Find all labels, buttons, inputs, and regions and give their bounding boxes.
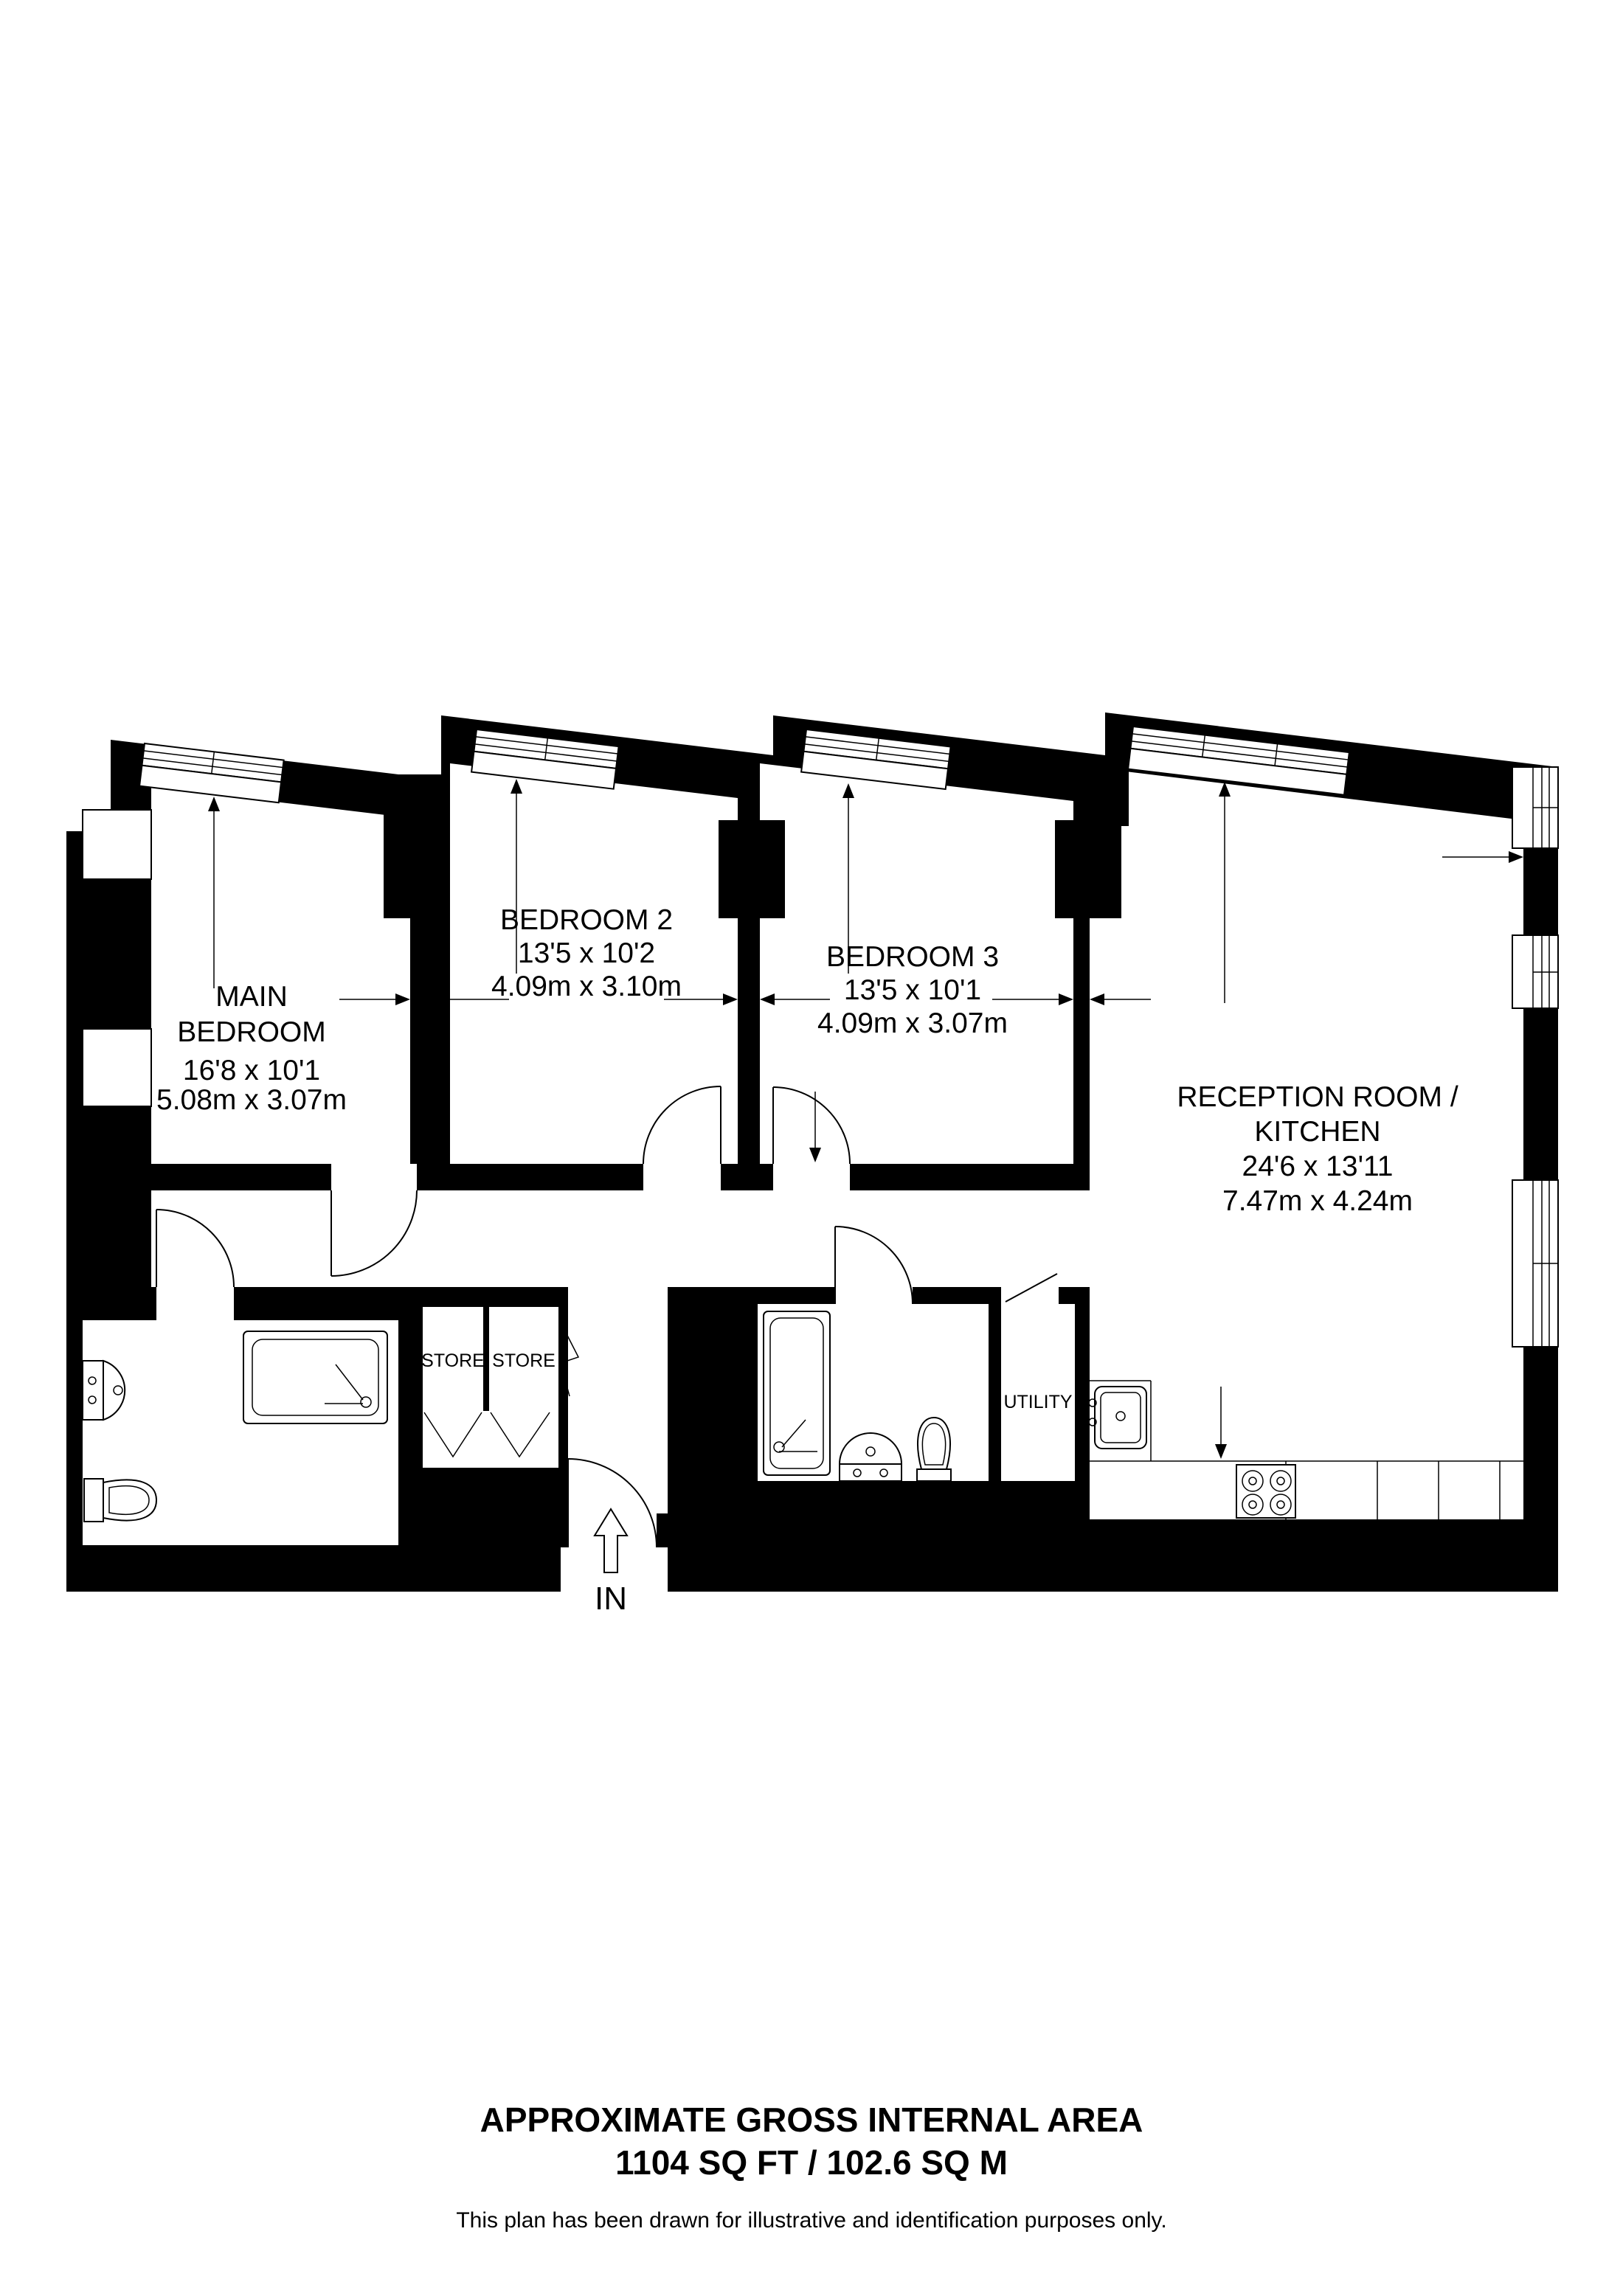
bedroom2-name: BEDROOM 2 <box>500 904 673 936</box>
main-bedroom-name-line2: BEDROOM <box>177 1016 326 1048</box>
kitchen-sink-icon <box>1089 1387 1146 1449</box>
main-bedroom-dims-metric: 5.08m x 3.07m <box>156 1084 347 1116</box>
entrance-corridor <box>568 1287 668 1513</box>
main-bedroom-name-line1: MAIN <box>215 981 288 1013</box>
floorplan-page: { "colors": { "wall": "#000000", "backgr… <box>0 0 1623 2296</box>
bedroom3-dims-metric: 4.09m x 3.07m <box>817 1007 1008 1039</box>
ensuite-toilet-icon <box>84 1479 156 1522</box>
footer-area-title: APPROXIMATE GROSS INTERNAL AREA <box>480 2101 1143 2139</box>
ensuite-bathtub-icon <box>243 1331 387 1423</box>
reception-name-line1: RECEPTION ROOM / <box>1177 1081 1458 1113</box>
store-right-label: STORE <box>492 1350 556 1371</box>
bedroom3-name: BEDROOM 3 <box>826 941 999 973</box>
footer: APPROXIMATE GROSS INTERNAL AREA 1104 SQ … <box>456 2101 1166 2233</box>
entrance-in-label: IN <box>595 1581 627 1617</box>
utility-label: UTILITY <box>1003 1392 1072 1412</box>
reception-dims-imperial: 24'6 x 13'11 <box>1242 1151 1394 1182</box>
bathroom-bathtub-icon <box>764 1311 830 1475</box>
footer-disclaimer: This plan has been drawn for illustrativ… <box>456 2208 1166 2233</box>
window-right-1-icon <box>1512 767 1558 848</box>
reception-name-line2: KITCHEN <box>1254 1116 1380 1148</box>
bedroom3-dims-imperial: 13'5 x 10'1 <box>844 974 981 1006</box>
window-right-3-icon <box>1512 1180 1558 1347</box>
footer-area-value: 1104 SQ FT / 102.6 SQ M <box>615 2143 1008 2182</box>
main-bedroom-dims-imperial: 16'8 x 10'1 <box>183 1055 320 1086</box>
reception-dims-metric: 7.47m x 4.24m <box>1222 1185 1413 1217</box>
bedroom2-dims-metric: 4.09m x 3.10m <box>491 971 682 1002</box>
bathroom-toilet-icon <box>917 1418 951 1481</box>
window-right-2-icon <box>1512 935 1558 1008</box>
bedroom2-dims-imperial: 13'5 x 10'2 <box>518 937 655 969</box>
store-left-label: STORE <box>421 1350 485 1371</box>
floor-plan: MAIN BEDROOM 16'8 x 10'1 5.08m x 3.07m B… <box>0 0 1623 2296</box>
hob-icon <box>1236 1465 1295 1518</box>
hallway <box>151 1190 1090 1287</box>
